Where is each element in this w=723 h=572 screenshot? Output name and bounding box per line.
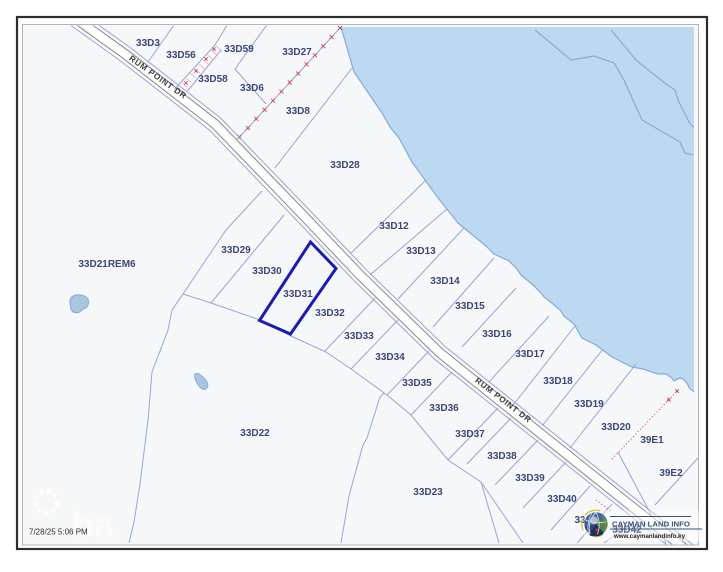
svg-text:33D34: 33D34 <box>375 352 405 363</box>
svg-text:33D37: 33D37 <box>455 429 485 440</box>
svg-text:33D31: 33D31 <box>283 289 313 300</box>
svg-text:33D18: 33D18 <box>543 376 573 387</box>
svg-text:39E1: 39E1 <box>640 435 664 446</box>
svg-text:33D15: 33D15 <box>455 301 485 312</box>
svg-text:33D21REM6: 33D21REM6 <box>78 259 136 270</box>
svg-text:33D16: 33D16 <box>482 329 512 340</box>
svg-text:33D59: 33D59 <box>224 44 254 55</box>
svg-text:33D22: 33D22 <box>240 428 270 439</box>
svg-text:33D27: 33D27 <box>282 47 312 58</box>
svg-text:33D13: 33D13 <box>406 246 436 257</box>
svg-text:33D42: 33D42 <box>612 525 642 536</box>
svg-text:33D14: 33D14 <box>430 276 460 287</box>
svg-text:33D32: 33D32 <box>315 308 345 319</box>
svg-text:ba: ba <box>72 504 115 545</box>
svg-text:39E2: 39E2 <box>659 468 683 479</box>
svg-text:33D20: 33D20 <box>601 422 631 433</box>
svg-text:33D30: 33D30 <box>252 266 282 277</box>
svg-text:33D19: 33D19 <box>574 399 604 410</box>
svg-text:7/28/25 5:06 PM: 7/28/25 5:06 PM <box>29 528 88 537</box>
svg-text:33D36: 33D36 <box>429 403 459 414</box>
svg-text:33D23: 33D23 <box>413 487 443 498</box>
svg-text:33D29: 33D29 <box>221 245 251 256</box>
svg-text:33D40: 33D40 <box>547 494 577 505</box>
svg-text:33D6: 33D6 <box>240 83 264 94</box>
svg-text:33D35: 33D35 <box>402 378 432 389</box>
svg-text:33D3: 33D3 <box>136 38 160 49</box>
svg-text:33D38: 33D38 <box>487 451 517 462</box>
svg-text:33D56: 33D56 <box>166 50 196 61</box>
svg-text:33D12: 33D12 <box>379 221 409 232</box>
svg-text:33D58: 33D58 <box>198 74 228 85</box>
svg-text:33D8: 33D8 <box>286 106 310 117</box>
svg-text:33D33: 33D33 <box>344 331 374 342</box>
svg-text:33D17: 33D17 <box>515 349 545 360</box>
svg-text:33D28: 33D28 <box>330 160 360 171</box>
svg-text:33D39: 33D39 <box>515 473 545 484</box>
